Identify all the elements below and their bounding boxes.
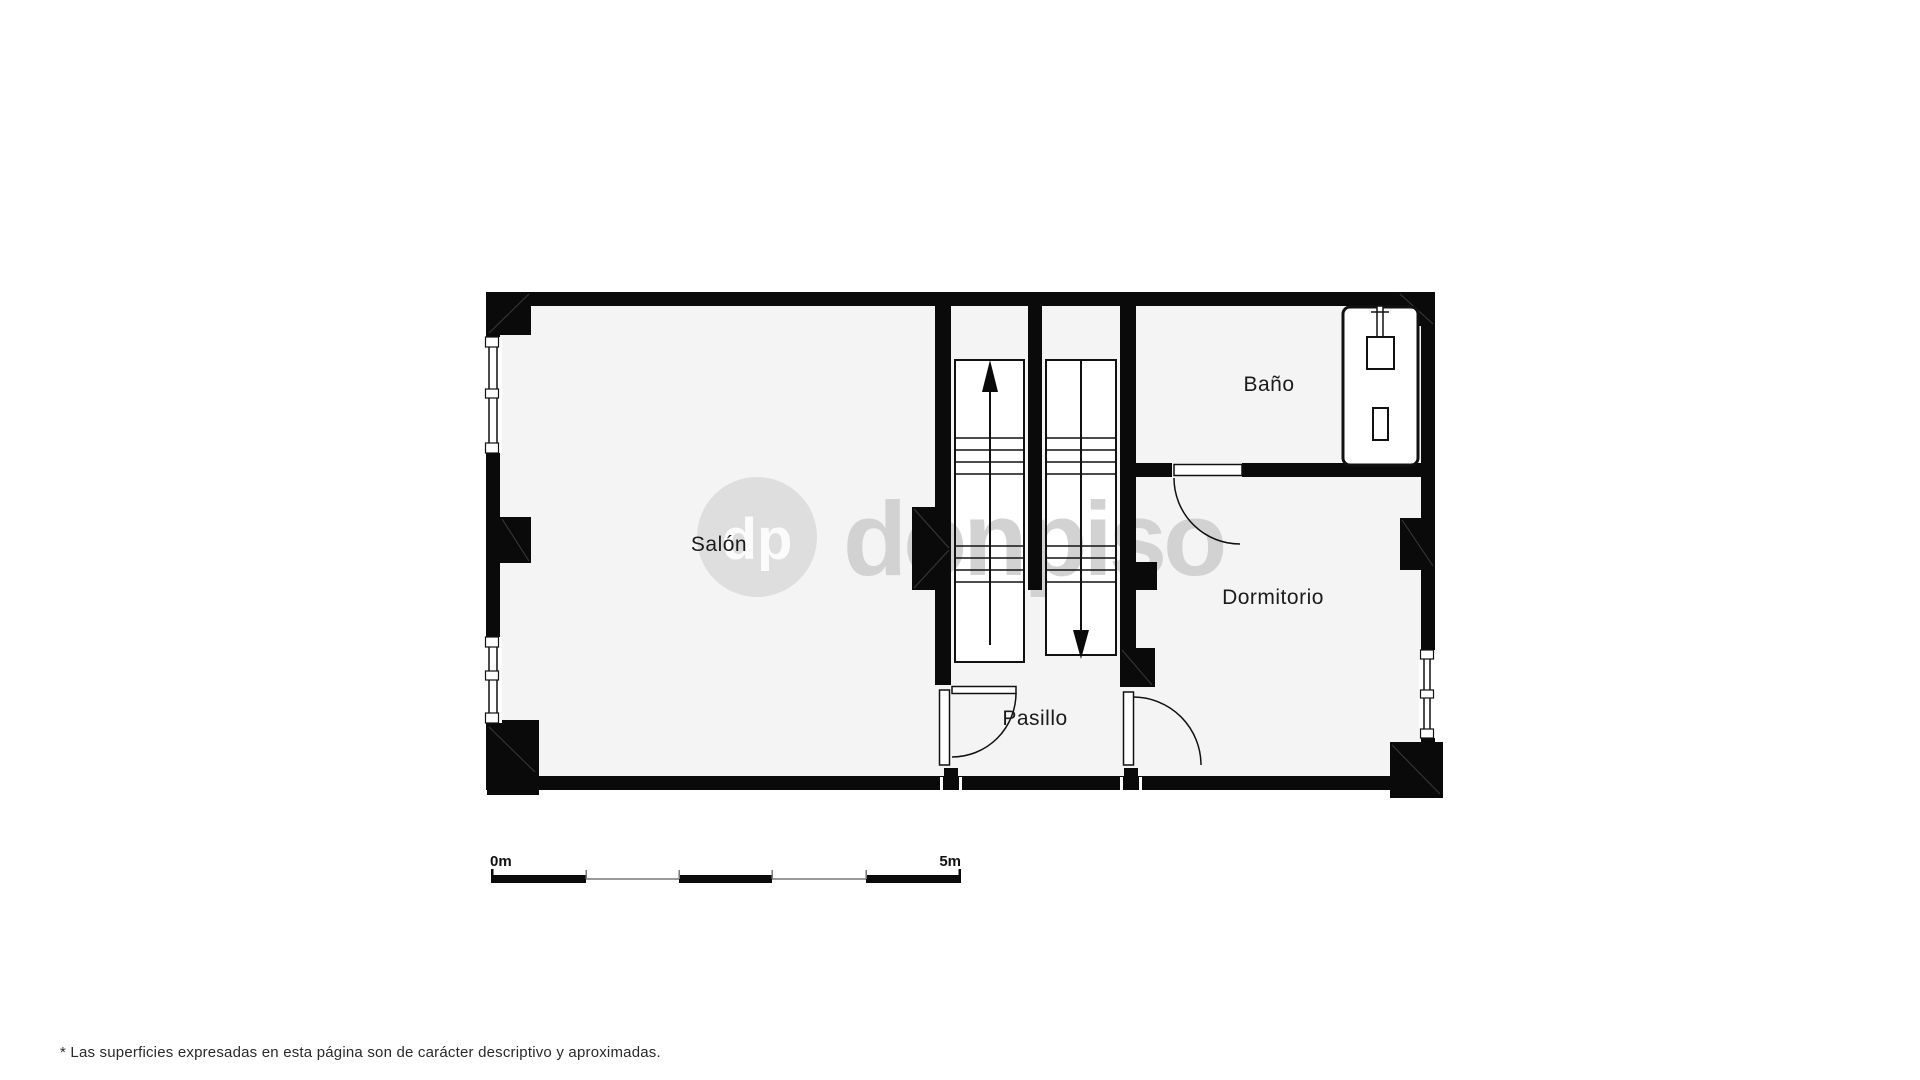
scale-segment — [679, 875, 772, 883]
window-right-dormitorio — [1419, 650, 1436, 738]
window-cap — [486, 443, 499, 453]
wall-top — [487, 292, 1435, 306]
window-left-lower — [484, 637, 502, 723]
label-dormitorio: Dormitorio — [1222, 586, 1324, 609]
window-mullion — [1421, 690, 1434, 698]
bathroom-fixtures — [1343, 306, 1418, 465]
pillar-dormitorio-left — [1136, 562, 1157, 590]
wall-bottom — [487, 776, 1443, 790]
wall-salon-stairs — [935, 306, 951, 685]
scale-segment — [866, 875, 960, 883]
toilet-fixture — [1373, 408, 1388, 440]
scale-end-tick — [959, 869, 962, 883]
window-cap — [486, 637, 499, 647]
sink-fixture — [1367, 337, 1394, 369]
window-mullion — [486, 389, 499, 398]
bano-door-leaf — [1174, 465, 1242, 476]
scale-start-label: 0m — [490, 853, 512, 870]
notch — [940, 777, 943, 790]
threshold-salon-door — [944, 768, 958, 790]
scale-end-tick — [491, 869, 494, 883]
salon-door-jamb — [940, 690, 950, 765]
footnote-disclaimer: * Las superficies expresadas en esta pág… — [60, 1044, 661, 1061]
label-pasillo: Pasillo — [1002, 707, 1067, 730]
corner-block-bottom-left — [487, 720, 539, 795]
scale-tick — [866, 870, 868, 879]
floor-plan-page: dp donpiso — [0, 0, 1920, 1080]
scale-bar-segments — [491, 869, 961, 883]
scale-tick — [586, 870, 588, 879]
window-cap — [486, 713, 499, 723]
label-bano: Baño — [1243, 373, 1294, 396]
salon-door-leaf — [952, 687, 1016, 694]
dormitorio-door-jamb — [1124, 692, 1134, 765]
wall-stair-divider — [1028, 306, 1042, 590]
threshold-dormitorio-door — [1124, 768, 1138, 790]
wall-bano-bottom-left — [1136, 463, 1172, 477]
wall-stairs-rooms — [1120, 306, 1136, 687]
label-salon: Salón — [691, 533, 747, 556]
scale-segment — [492, 875, 586, 883]
window-cap — [486, 337, 499, 347]
window-mullion — [486, 671, 499, 680]
scale-bar: 0m 5m — [490, 853, 961, 883]
scale-end-label: 5m — [939, 853, 961, 870]
notch — [1139, 777, 1142, 790]
scale-tick — [679, 870, 681, 879]
notch — [959, 777, 962, 790]
pillar-right-wall — [1400, 518, 1435, 570]
notch — [1120, 777, 1123, 790]
floor-plan-svg: dp donpiso — [0, 0, 1920, 1080]
scale-tick — [772, 870, 774, 879]
window-cap — [1421, 650, 1434, 659]
window-cap — [1421, 729, 1434, 738]
pillar-salon-wall — [912, 507, 951, 590]
window-left-upper — [484, 337, 502, 453]
